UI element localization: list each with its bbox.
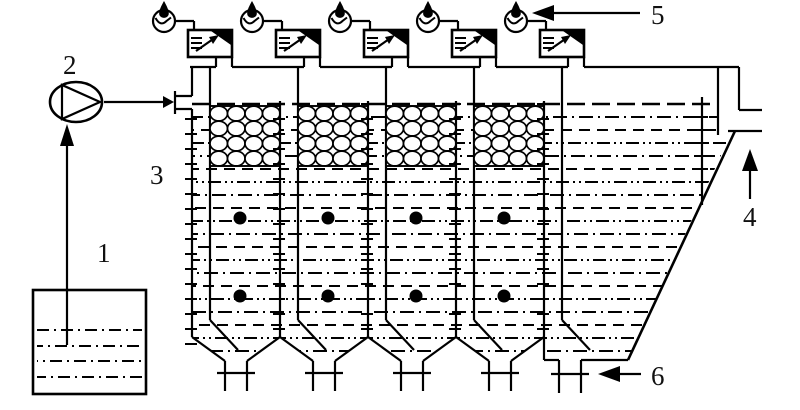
effluent-outlet	[718, 67, 762, 135]
label-feed-tank: 1	[97, 238, 111, 268]
flow-arrow-icon	[742, 149, 758, 171]
label-pump: 2	[63, 50, 77, 80]
inlet-port	[175, 91, 192, 114]
flow-arrow-icon	[60, 124, 74, 146]
label-effluent: 4	[743, 202, 757, 232]
pointer-arrow-icon	[598, 366, 620, 382]
settling-zone	[544, 67, 735, 393]
flow-arrow-icon	[163, 96, 174, 108]
diagram-canvas: 1 2 3 4 5 6	[0, 0, 800, 410]
chamber-1	[192, 67, 280, 391]
label-gas-meter: 5	[651, 0, 665, 30]
chamber-4	[456, 67, 544, 391]
label-sludge-drain: 6	[651, 361, 665, 391]
gas-collection-units	[153, 1, 584, 67]
label-reactor: 3	[150, 160, 164, 190]
pump-icon	[50, 82, 102, 122]
pointer-arrow-icon	[532, 5, 554, 21]
process-flow-diagram: 1 2 3 4 5 6	[0, 0, 800, 410]
chamber-2	[280, 67, 368, 391]
lamella-plate	[628, 131, 735, 360]
feed-tank	[33, 290, 146, 394]
diagram-labels: 1 2 3 4 5 6	[63, 0, 757, 391]
chamber-3	[368, 67, 456, 391]
feed-pump	[50, 82, 174, 345]
